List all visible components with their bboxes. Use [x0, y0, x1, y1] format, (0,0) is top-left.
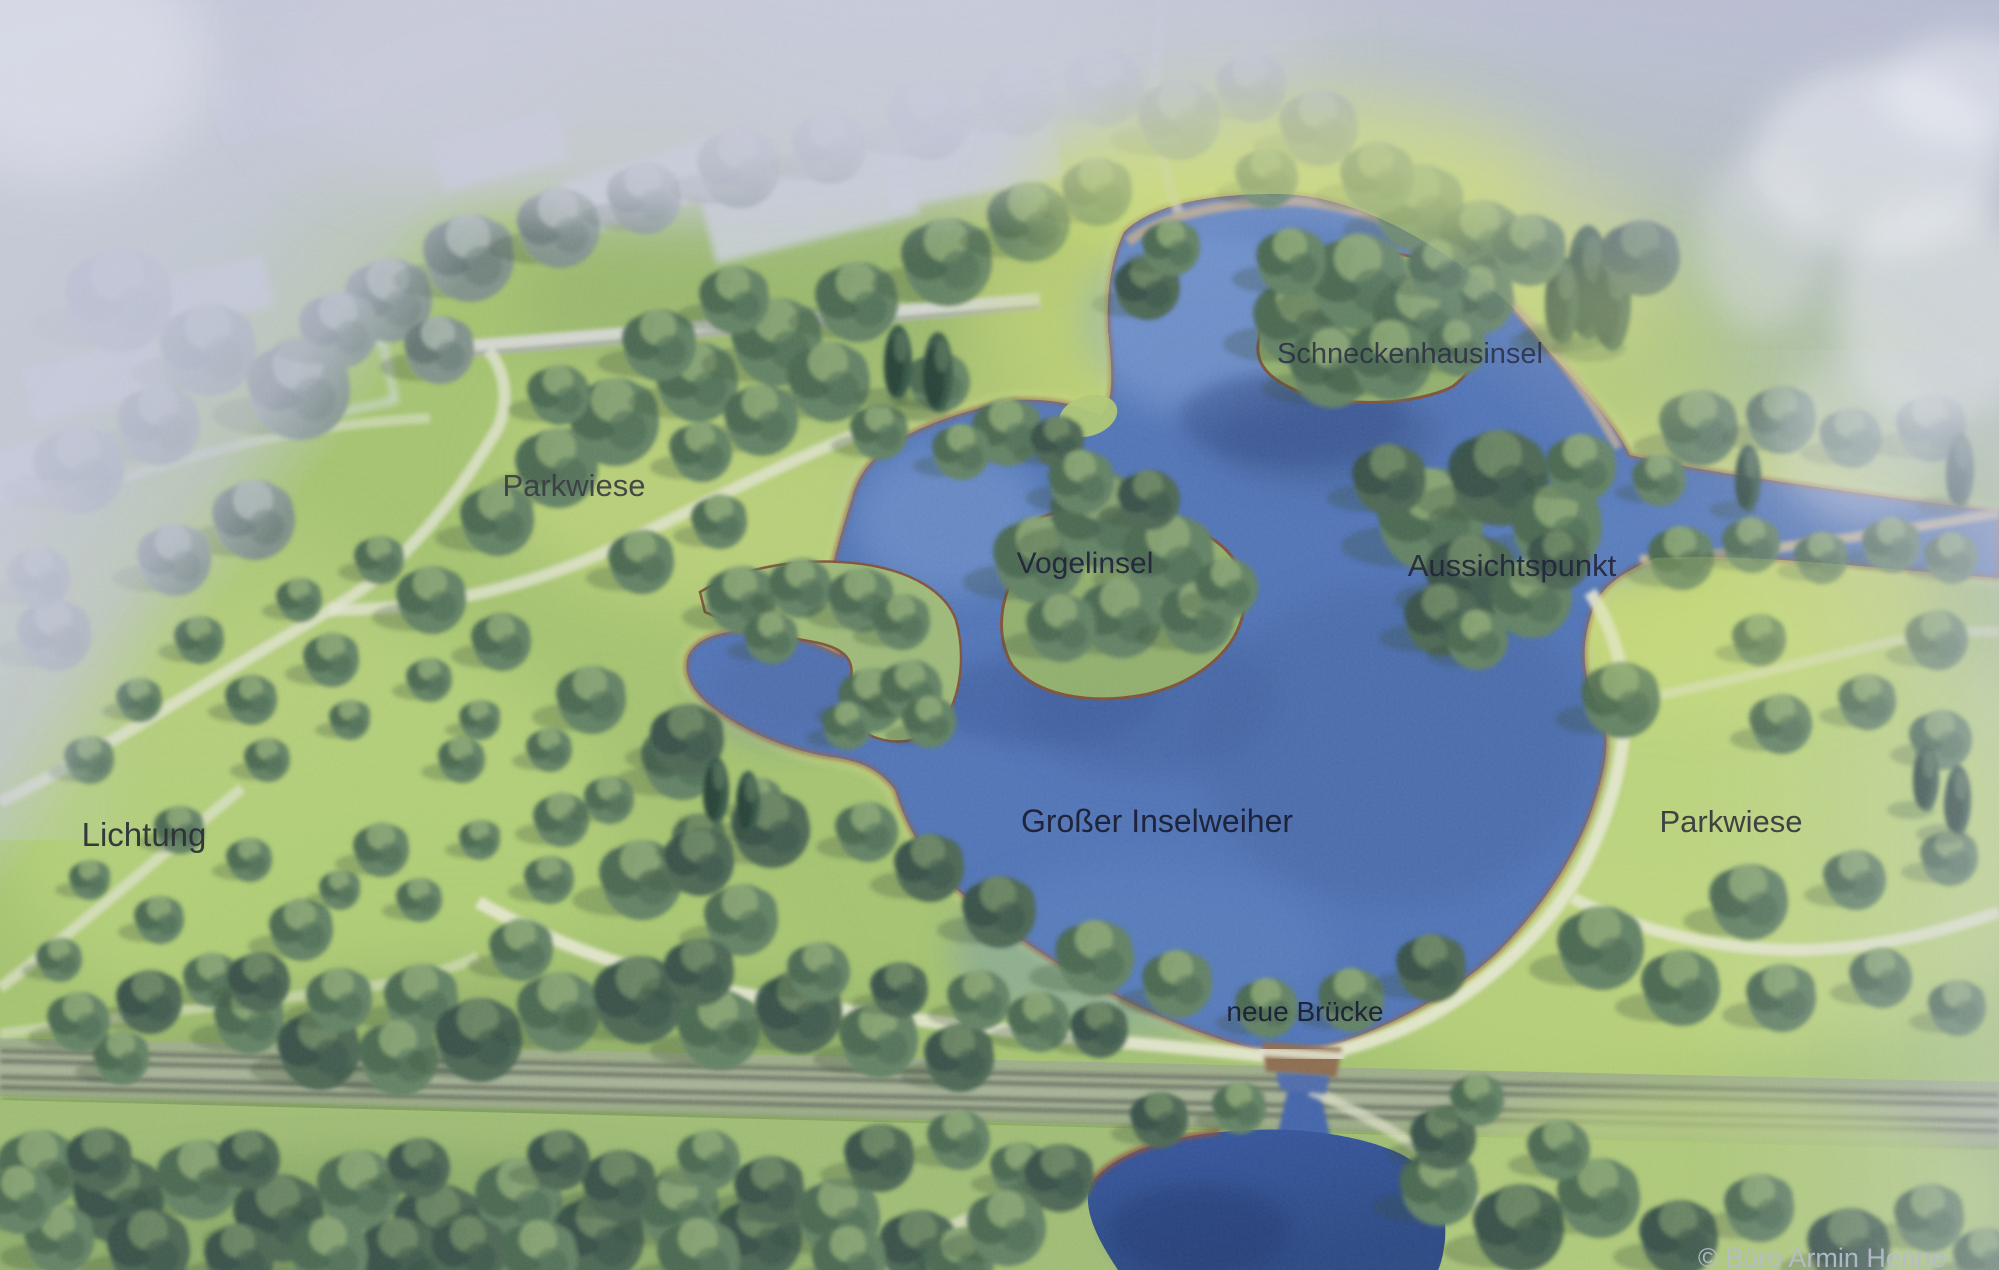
svg-text:neue Brücke: neue Brücke	[1226, 996, 1383, 1027]
svg-text:© Büro Armin Henne: © Büro Armin Henne	[1698, 1243, 1946, 1270]
svg-text:Vogelinsel: Vogelinsel	[1017, 547, 1154, 580]
svg-text:Lichtung: Lichtung	[82, 816, 207, 853]
svg-text:Schneckenhausinsel: Schneckenhausinsel	[1277, 338, 1543, 370]
svg-text:Parkwiese: Parkwiese	[503, 468, 646, 503]
svg-text:Parkwiese: Parkwiese	[1660, 804, 1803, 839]
svg-text:Aussichtspunkt: Aussichtspunkt	[1408, 548, 1617, 583]
svg-text:Großer Inselweiher: Großer Inselweiher	[1021, 803, 1293, 839]
